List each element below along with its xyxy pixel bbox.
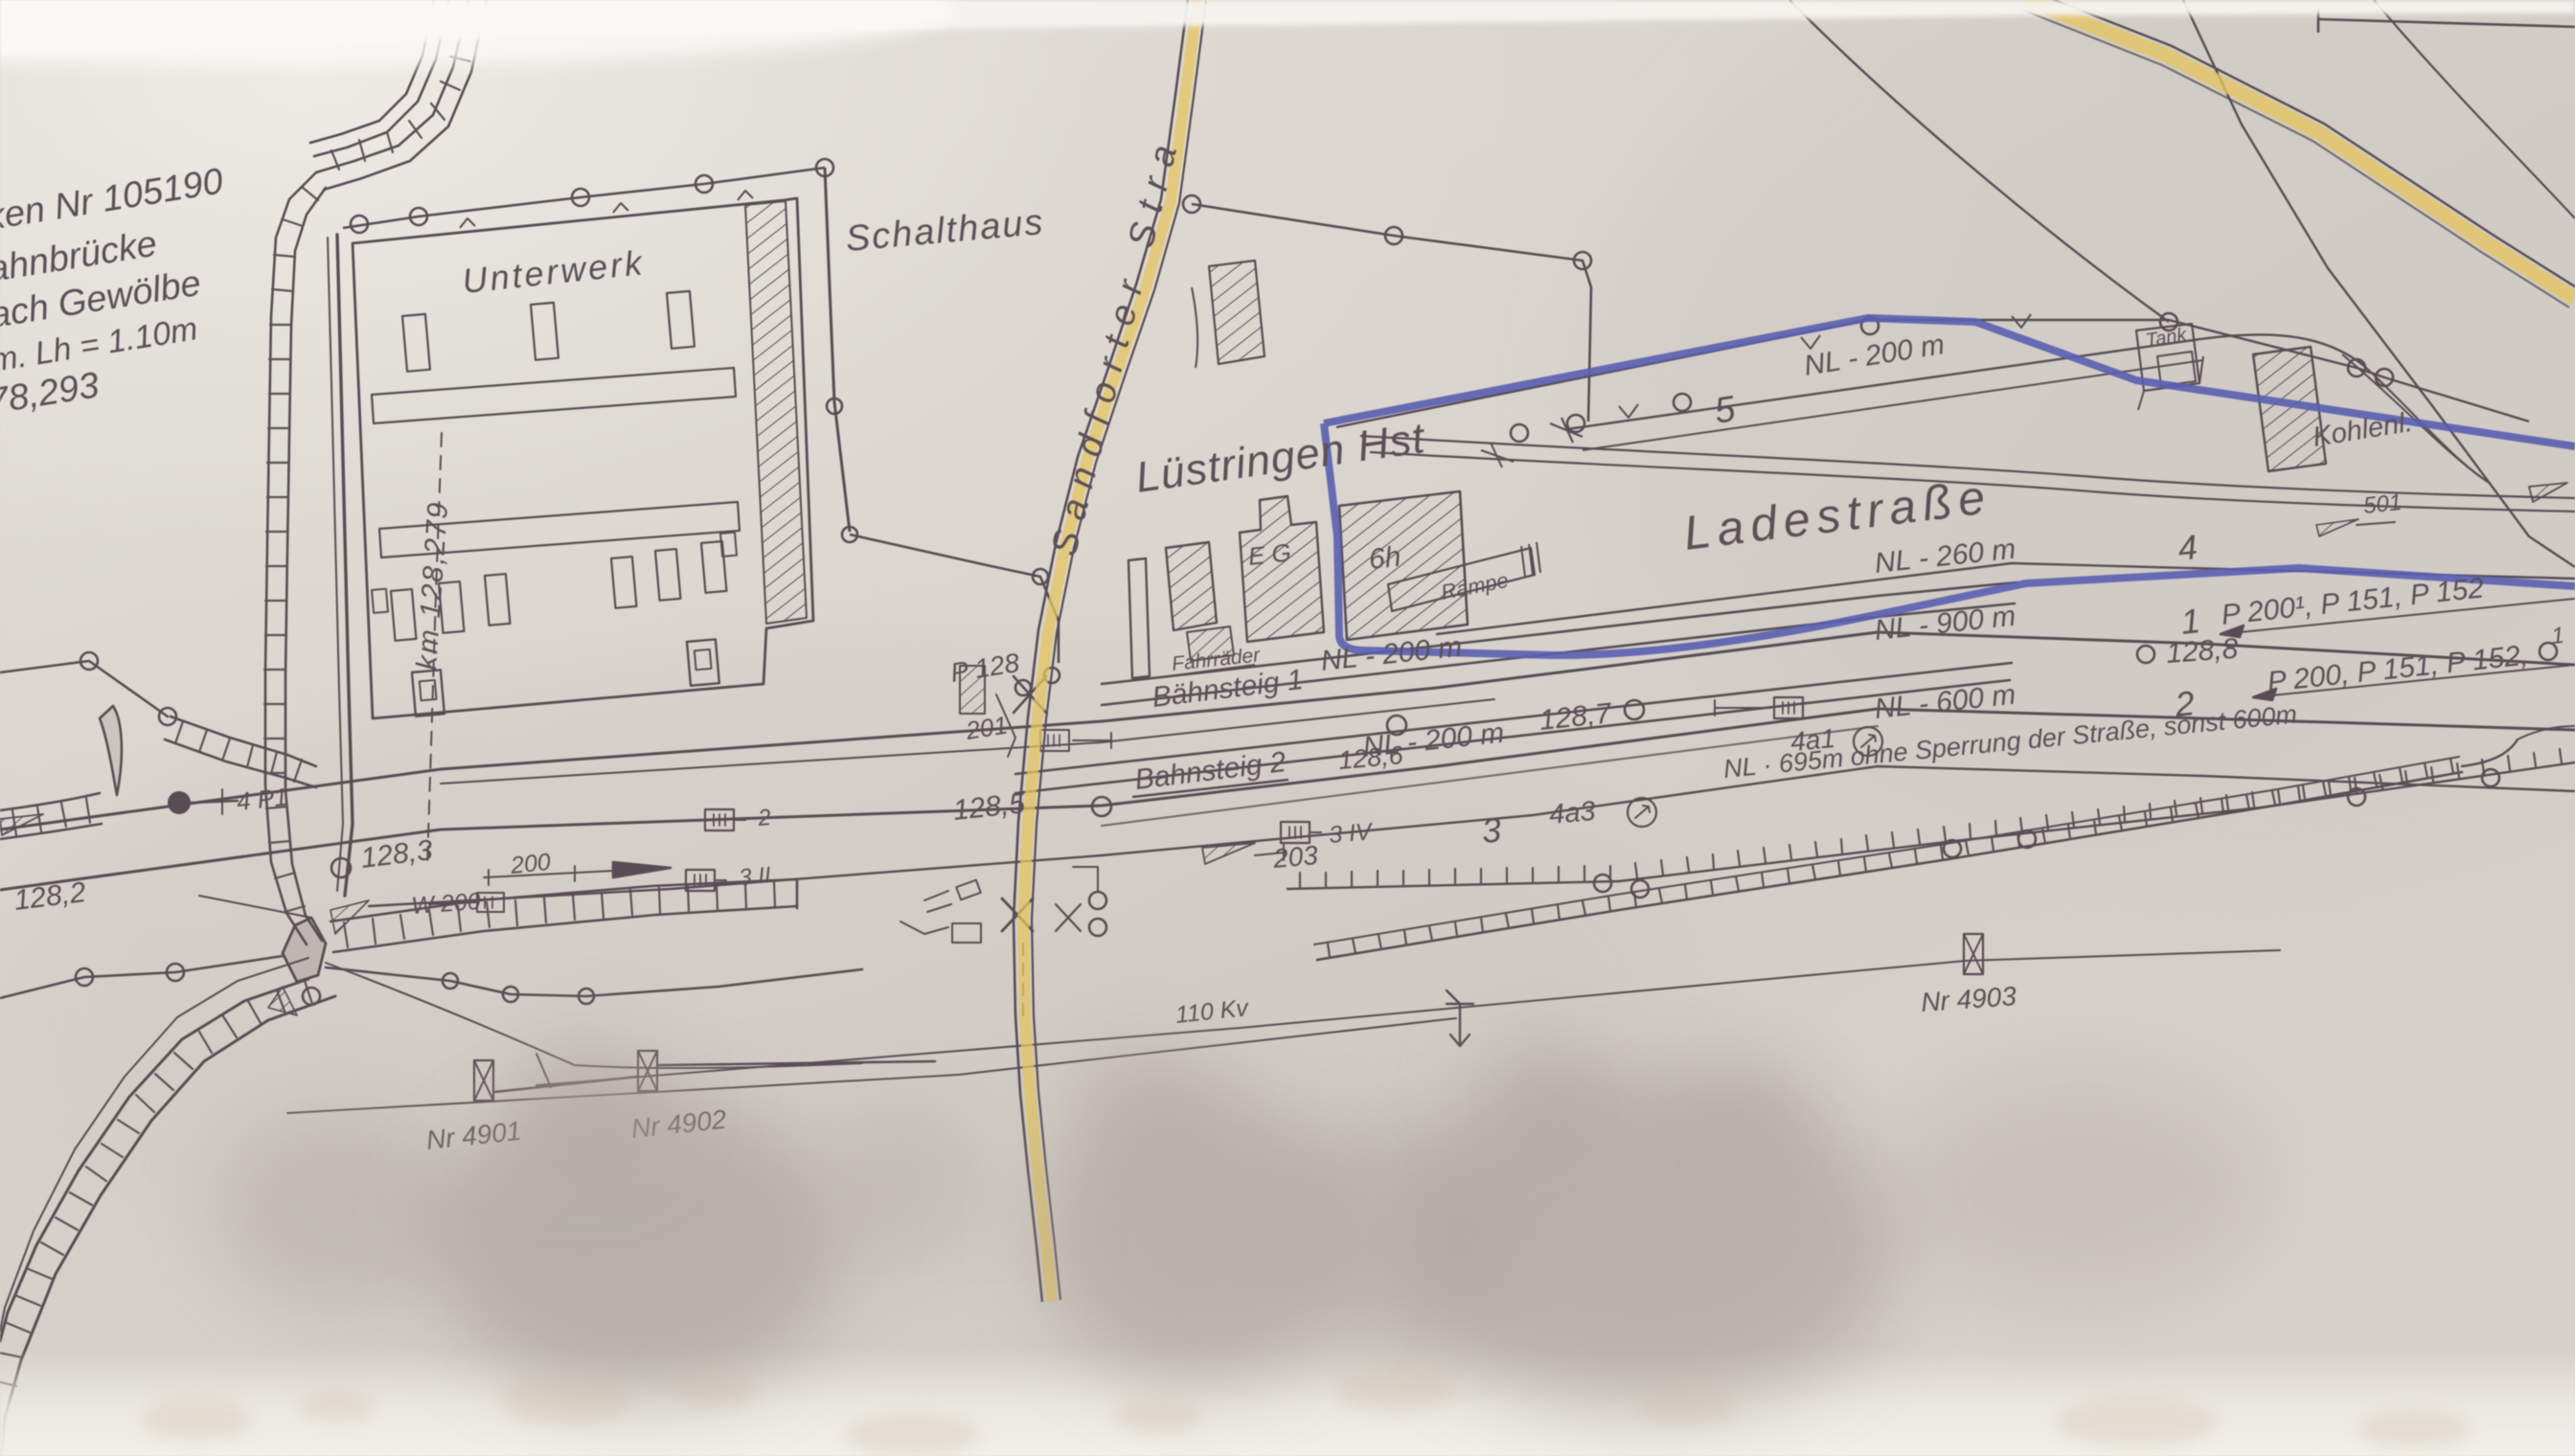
svg-text:3 II: 3 II [738,862,772,891]
svg-text:128,8: 128,8 [2165,633,2240,670]
svg-text:3 IV: 3 IV [1328,818,1375,849]
svg-text:4: 4 [2176,527,2199,568]
svg-text:128,6: 128,6 [1337,740,1405,775]
svg-text:1: 1 [2550,623,2565,649]
svg-text:501: 501 [2362,489,2404,519]
svg-text:4a3: 4a3 [1548,796,1597,830]
svg-text:3: 3 [1480,809,1503,851]
svg-text:4 P1: 4 P1 [235,783,288,816]
svg-text:4a1: 4a1 [1789,723,1836,757]
svg-text:W 200: W 200 [410,888,481,920]
svg-text:2: 2 [756,805,772,831]
svg-text:203: 203 [1271,840,1320,874]
svg-text:E G: E G [1246,537,1292,571]
svg-text:6h: 6h [1367,541,1402,576]
svg-text:200: 200 [509,849,552,879]
